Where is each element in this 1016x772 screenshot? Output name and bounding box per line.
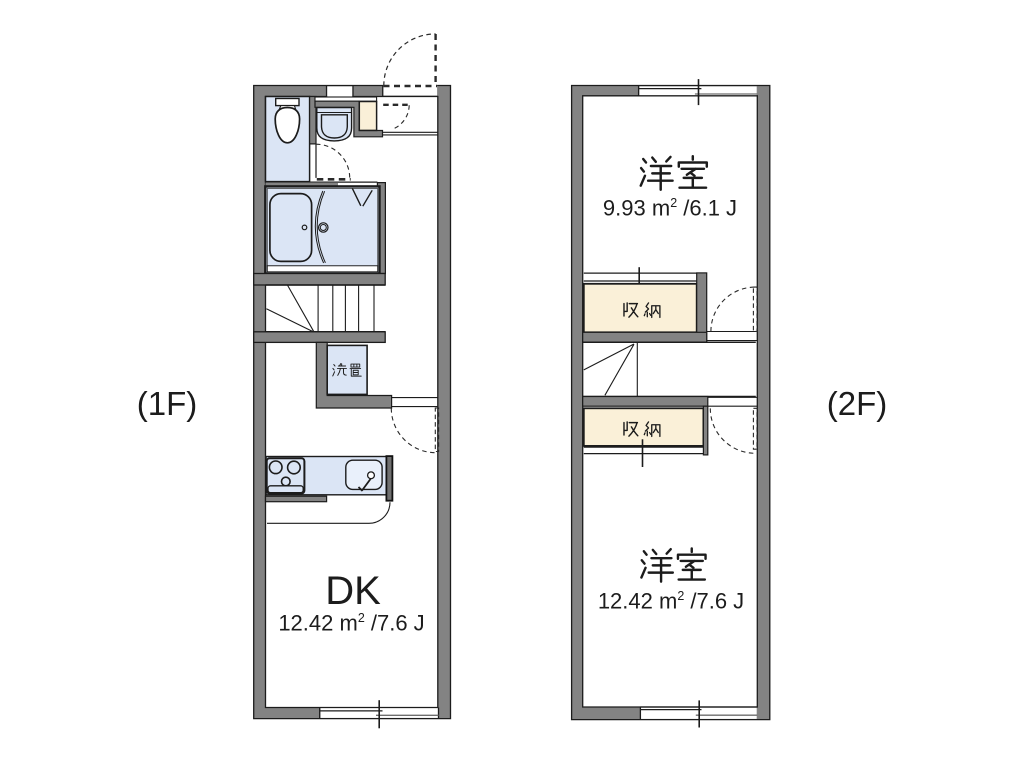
svg-text:DK: DK — [325, 569, 381, 613]
svg-text:(2F): (2F) — [827, 385, 888, 422]
svg-text:12.42 m2 /7.6 J: 12.42 m2 /7.6 J — [278, 611, 424, 636]
svg-text:12.42 m2 /7.6 J: 12.42 m2 /7.6 J — [598, 589, 744, 614]
svg-text:(1F): (1F) — [137, 385, 198, 422]
svg-text:9.93 m2 /6.1 J: 9.93 m2 /6.1 J — [603, 196, 737, 221]
